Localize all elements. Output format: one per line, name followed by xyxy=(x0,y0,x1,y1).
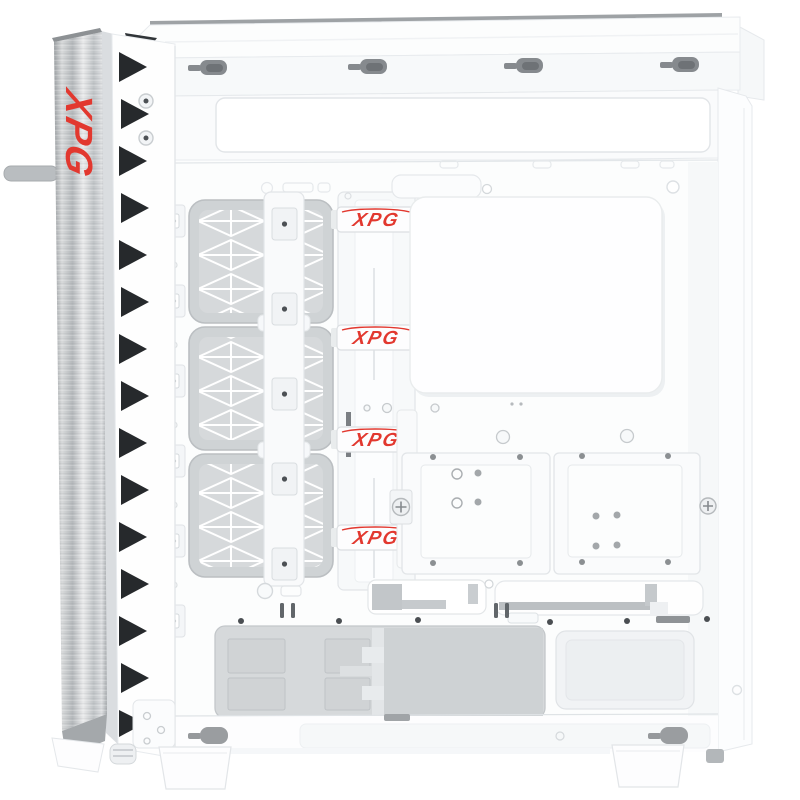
front-corner-bracket xyxy=(133,700,175,748)
fan-filter-1 xyxy=(189,200,333,323)
strap-logo: XPG xyxy=(350,328,402,349)
cpu-cutout-cover xyxy=(410,197,662,393)
product-photo: XPG XPG XPG XPG xyxy=(0,0,800,800)
pc-case-illustration: XPG XPG XPG XPG xyxy=(0,0,800,800)
fan-filter-3 xyxy=(189,454,333,577)
frame-screw-hole xyxy=(733,686,742,695)
drive-plate-1 xyxy=(402,453,550,574)
strap-logo: XPG xyxy=(350,430,402,451)
drive-plate-2 xyxy=(554,453,700,574)
top-panel xyxy=(112,13,764,164)
chamber-divider xyxy=(372,628,384,716)
motherboard-tray: XPG XPG XPG XPG xyxy=(153,160,718,752)
gpu-bracket xyxy=(656,616,690,623)
screw-hole xyxy=(667,181,679,193)
fan-rail xyxy=(258,192,310,586)
front-panel: XPG xyxy=(4,28,175,772)
panel-hinge-stub xyxy=(4,166,58,181)
top-frame-strip xyxy=(160,52,740,96)
front-foot xyxy=(110,744,136,764)
rear-thumbscrew xyxy=(700,498,716,514)
cable-strap-2: XPG xyxy=(331,325,421,350)
screw-hole xyxy=(483,185,492,194)
strap-logo: XPG xyxy=(350,210,402,231)
front-brand-logo: XPG xyxy=(57,84,99,183)
front-bottom-cap xyxy=(52,738,104,772)
top-rear-lip xyxy=(738,26,764,100)
psu-chamber-cutout xyxy=(215,626,545,718)
radiator-bracket-channel xyxy=(216,98,710,152)
psu-side-vent xyxy=(556,631,694,709)
cable-strap-1: XPG xyxy=(331,207,421,232)
strap-logo: XPG xyxy=(350,528,402,549)
aluminum-trim: XPG xyxy=(52,28,107,772)
rear-foot-peg xyxy=(706,749,724,763)
plate-bracket xyxy=(390,490,412,524)
case-feet xyxy=(159,745,724,789)
fan-filter-2 xyxy=(189,327,333,450)
cable-grommet-slot xyxy=(392,175,481,198)
